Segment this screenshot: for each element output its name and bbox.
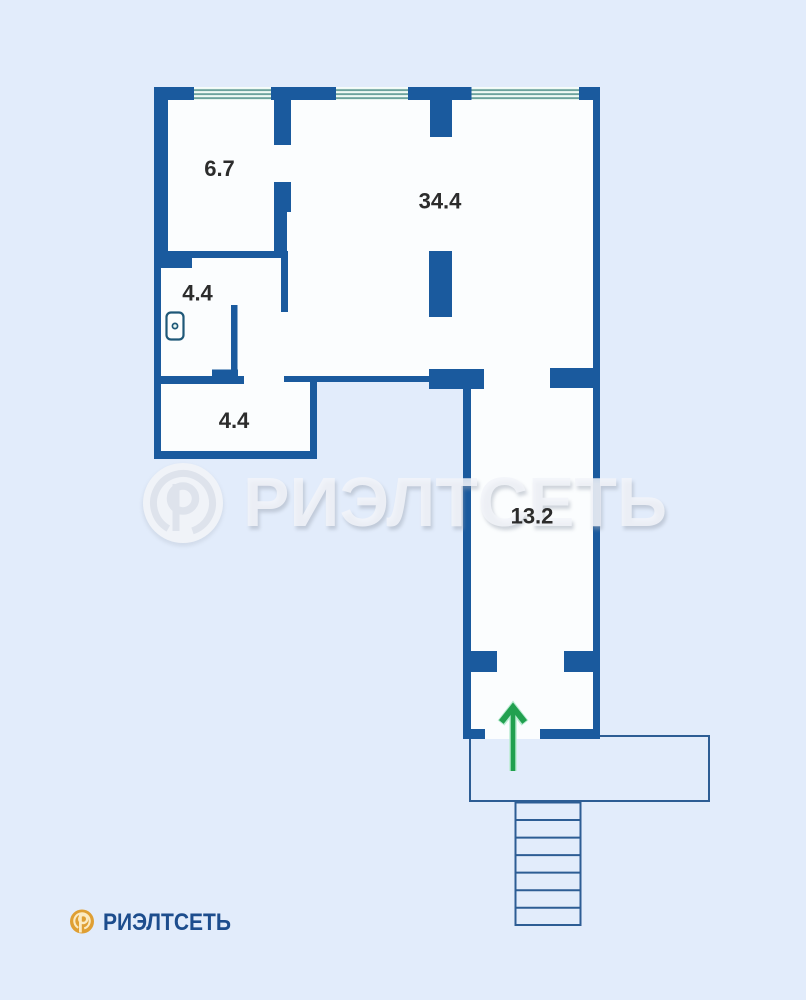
svg-text:РИЭЛТСЕТЬ: РИЭЛТСЕТЬ [103,909,231,936]
svg-text:13.2: 13.2 [511,504,554,529]
svg-text:34.4: 34.4 [419,189,463,214]
svg-text:РИЭЛТСЕТЬ: РИЭЛТСЕТЬ [243,463,667,541]
svg-text:4.4: 4.4 [182,281,213,306]
svg-text:4.4: 4.4 [219,408,250,433]
svg-text:6.7: 6.7 [204,156,235,181]
